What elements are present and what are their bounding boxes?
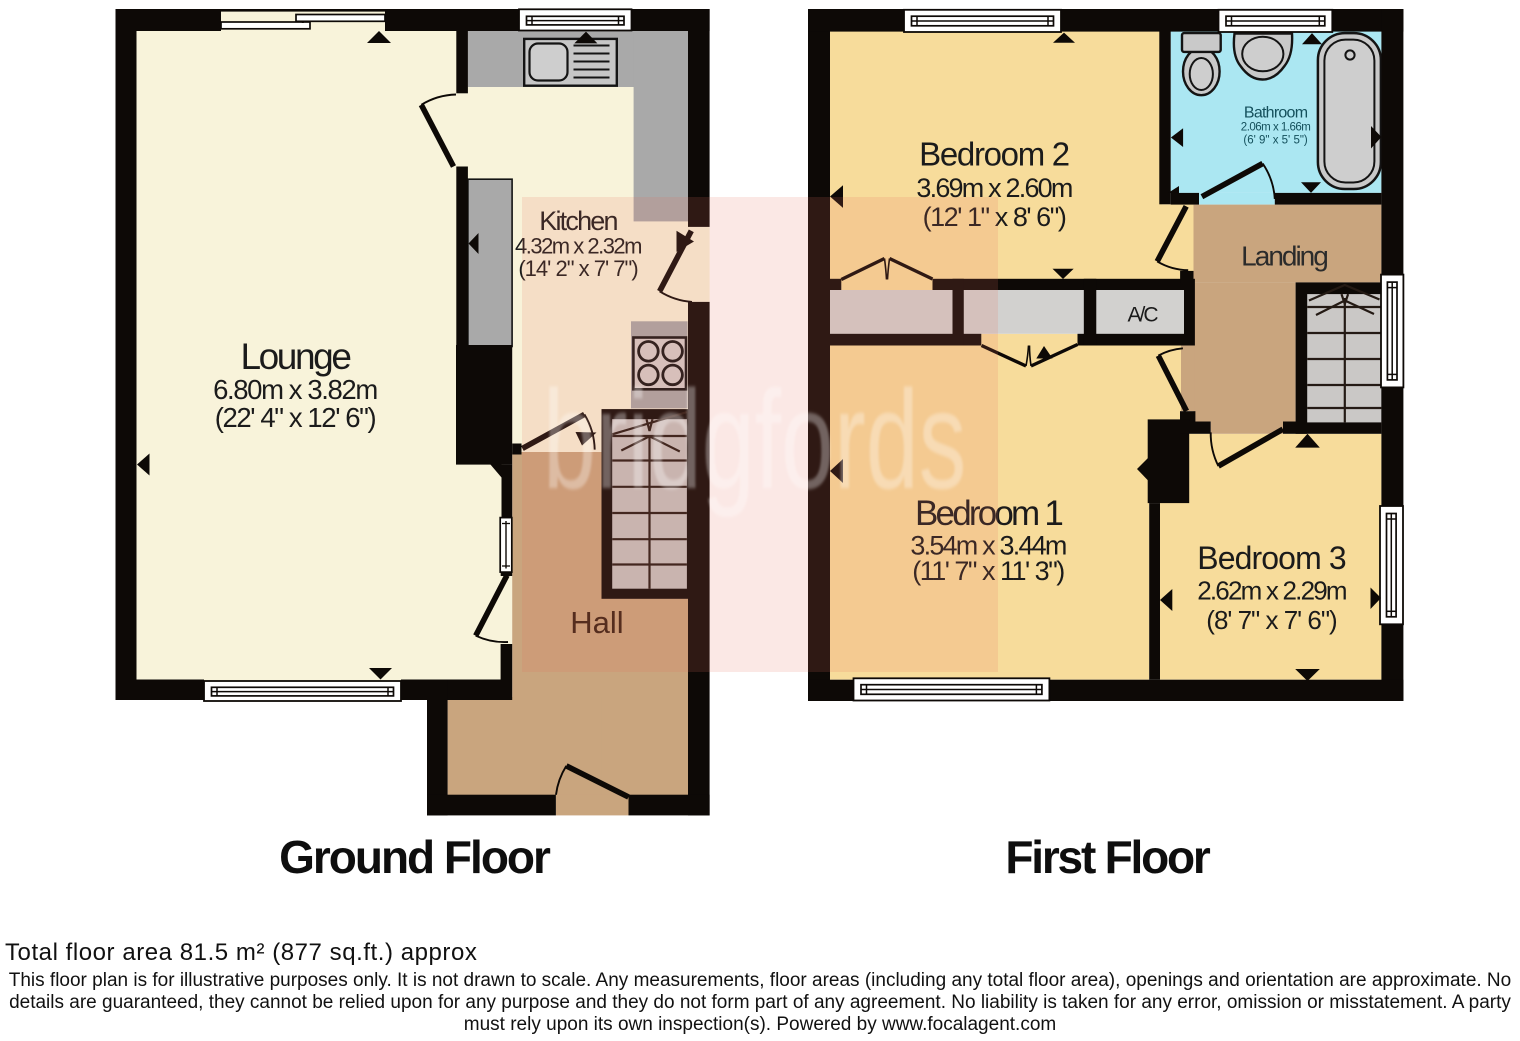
svg-text:2.06m x 1.66m: 2.06m x 1.66m (1241, 122, 1311, 134)
svg-text:Total floor area 81.5 m² (877: Total floor area 81.5 m² (877 sq.ft.) ap… (5, 939, 477, 966)
svg-text:Bedroom 2: Bedroom 2 (919, 136, 1069, 173)
svg-text:details are guaranteed, they c: details are guaranteed, they cannot be r… (9, 992, 1511, 1013)
svg-text:Bedroom 3: Bedroom 3 (1197, 540, 1346, 576)
svg-text:bridgfords: bridgfords (543, 363, 966, 519)
svg-text:6.80m x 3.82m: 6.80m x 3.82m (213, 374, 377, 405)
svg-text:2.62m x 2.29m: 2.62m x 2.29m (1197, 576, 1346, 606)
svg-text:Lounge: Lounge (240, 336, 350, 377)
svg-text:must rely upon its own inspect: must rely upon its own inspection(s). Po… (464, 1014, 1056, 1035)
svg-text:Landing: Landing (1241, 241, 1327, 272)
svg-text:(22' 4" x 12' 6"): (22' 4" x 12' 6") (215, 402, 376, 433)
svg-text:(8' 7" x 7' 6"): (8' 7" x 7' 6") (1206, 605, 1337, 635)
svg-text:(6' 9" x 5' 5"): (6' 9" x 5' 5") (1243, 135, 1307, 147)
svg-text:Bathroom: Bathroom (1244, 105, 1308, 122)
svg-text:A/C: A/C (1127, 304, 1158, 327)
svg-text:This floor plan is for illustr: This floor plan is for illustrative purp… (9, 970, 1511, 991)
svg-text:Ground Floor: Ground Floor (279, 831, 551, 883)
svg-text:First Floor: First Floor (1005, 831, 1211, 883)
